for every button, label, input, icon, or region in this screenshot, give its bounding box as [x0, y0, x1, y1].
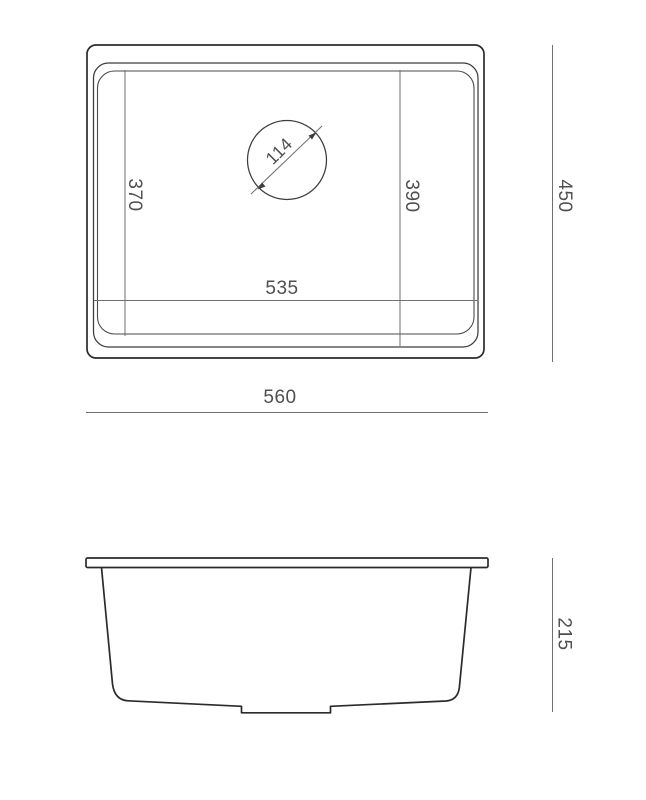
overall-depth-dimension: 450 — [553, 45, 575, 362]
dim-label-overall-width: 560 — [263, 387, 296, 408]
dim-label-bowl-width: 535 — [265, 278, 298, 299]
rim-flange — [86, 558, 488, 568]
dim-label-overall-height: 215 — [553, 617, 574, 650]
dim-label-bowl-depth-left: 370 — [124, 178, 145, 211]
sink-outer-edge — [87, 45, 484, 358]
technical-drawing-page: 114 370 390 535 560 450 215 — [0, 0, 646, 800]
top-view: 114 370 390 535 — [87, 45, 484, 358]
bowl-body-profile — [102, 568, 472, 713]
dim-label-bowl-depth-right: 390 — [401, 179, 422, 212]
dim-label-overall-depth: 450 — [554, 179, 575, 212]
dim-label-drain-diameter: 114 — [262, 134, 297, 169]
overall-height-dimension: 215 — [553, 558, 575, 712]
overall-width-dimension: 560 — [86, 387, 488, 413]
side-view — [86, 558, 488, 713]
sink-dimension-drawing: 114 370 390 535 560 450 215 — [0, 0, 646, 800]
